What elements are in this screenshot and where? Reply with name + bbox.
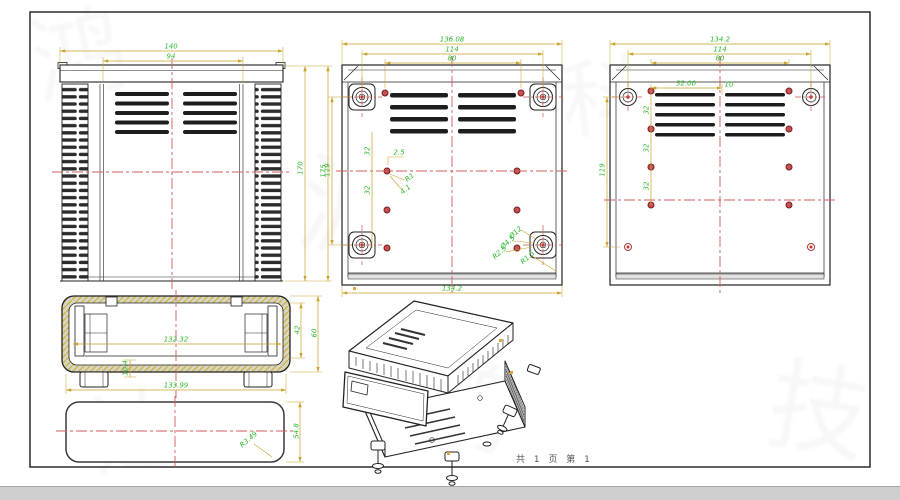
internal-structure-right xyxy=(245,306,277,356)
drawing-sheet: 鸿源科技达鸿源 xyxy=(0,0,900,500)
heatsink-fins-left xyxy=(62,84,88,281)
top-notch xyxy=(106,297,117,306)
iso-clamp xyxy=(527,364,541,375)
iso-screw xyxy=(445,452,459,485)
isometric-view xyxy=(343,287,541,485)
top-notch xyxy=(231,297,242,306)
front-vent-slots xyxy=(115,92,237,134)
internal-structure-left xyxy=(75,306,107,356)
cad-drawing-canvas xyxy=(0,0,900,500)
heatsink-fins-right xyxy=(255,84,281,281)
sheet-edge-shadow xyxy=(0,486,900,500)
bottom-view-a xyxy=(342,65,563,285)
iso-screw xyxy=(371,441,385,473)
lid-front-edge xyxy=(60,65,283,82)
iso-washer xyxy=(483,442,491,446)
page-count-note: 共 1 页 第 1 xyxy=(516,452,593,465)
